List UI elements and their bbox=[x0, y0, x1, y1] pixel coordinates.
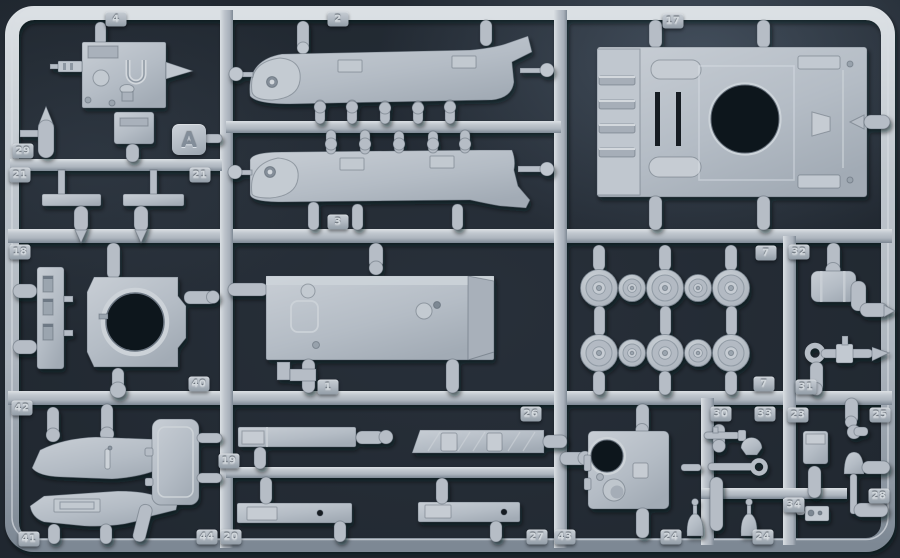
part-number-tag-24: 24 bbox=[661, 530, 682, 545]
part-number-tag-33: 33 bbox=[755, 407, 776, 422]
part-number-tag-21: 21 bbox=[190, 168, 211, 183]
part-number-tag-29: 29 bbox=[13, 144, 34, 159]
part-number-tag-40: 40 bbox=[189, 377, 210, 392]
part-number-tag-17: 17 bbox=[663, 14, 684, 29]
part-number-tag-2: 2 bbox=[328, 12, 349, 27]
part-number-tag-32: 32 bbox=[789, 245, 810, 260]
part-number-tag-7: 7 bbox=[756, 246, 777, 261]
part-number-tag-20: 20 bbox=[221, 530, 242, 545]
part-number-tag-43: 43 bbox=[555, 530, 576, 545]
part-number-tag-7: 7 bbox=[754, 377, 775, 392]
sprue-letter-plate: A bbox=[172, 124, 206, 155]
part-number-tag-23: 23 bbox=[788, 408, 809, 423]
part-number-tag-1: 1 bbox=[318, 380, 339, 395]
part-number-tag-3: 3 bbox=[328, 215, 349, 230]
tags-layer: 4217292121318732401731422630332325193428… bbox=[0, 0, 900, 558]
sprue-photo: 4217292121318732401731422630332325193428… bbox=[0, 0, 900, 558]
part-number-tag-4: 4 bbox=[106, 12, 127, 27]
part-number-tag-34: 34 bbox=[784, 498, 805, 513]
part-number-tag-28: 28 bbox=[869, 489, 890, 504]
part-number-tag-27: 27 bbox=[527, 530, 548, 545]
part-number-tag-44: 44 bbox=[197, 530, 218, 545]
part-number-tag-21: 21 bbox=[10, 168, 31, 183]
part-number-tag-26: 26 bbox=[521, 407, 542, 422]
part-number-tag-25: 25 bbox=[870, 408, 891, 423]
part-number-tag-24: 24 bbox=[753, 530, 774, 545]
part-number-tag-19: 19 bbox=[219, 454, 240, 469]
part-number-tag-31: 31 bbox=[796, 380, 817, 395]
part-number-tag-41: 41 bbox=[19, 532, 40, 547]
part-number-tag-30: 30 bbox=[711, 407, 732, 422]
part-number-tag-42: 42 bbox=[12, 401, 33, 416]
part-number-tag-18: 18 bbox=[10, 245, 31, 260]
